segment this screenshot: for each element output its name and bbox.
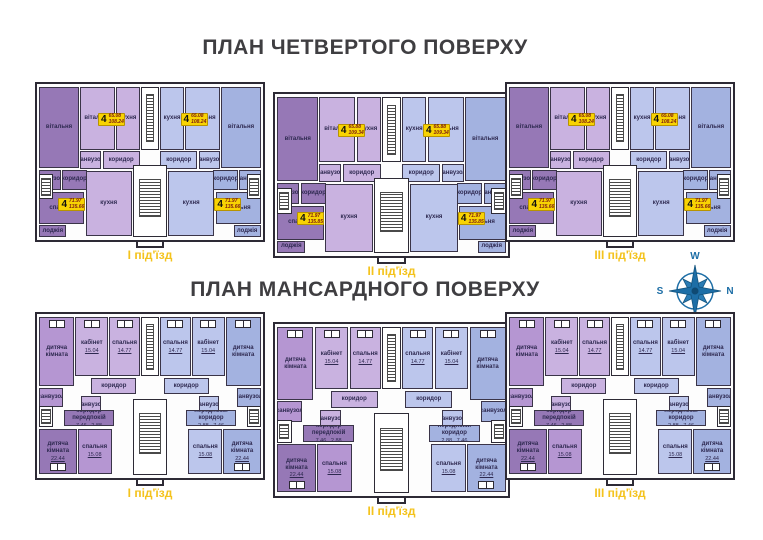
room-label: дитяча кімната [41, 441, 74, 455]
shaft-hatch-icon [146, 324, 154, 370]
window-icon [670, 320, 686, 328]
room-label: санвузол [39, 394, 63, 401]
room-area: 22.44 [480, 472, 494, 478]
room-label: спальня [663, 444, 688, 451]
room-label: санвузол [707, 394, 731, 401]
room-bathroom: санвузол [237, 388, 261, 408]
room-label: спальня [582, 340, 607, 347]
room-corridor: коридор [301, 183, 327, 204]
room-area: 15.08 [442, 469, 456, 475]
room-label: дитяча кімната [279, 458, 313, 472]
room-children-room: дитяча кімната [277, 327, 313, 399]
window-icon [167, 320, 183, 328]
apartment-area-badge: 471.97135.66 [684, 198, 711, 211]
room-bathroom: санвузол [277, 401, 301, 422]
room-area: 15.04 [201, 348, 215, 354]
room-study: кабінет15.04 [545, 317, 578, 376]
room-label: коридор передпокій [66, 410, 112, 422]
stair-core [603, 165, 637, 237]
entrance-label-II: ІІ під'їзд [273, 504, 510, 518]
room-area: 14.77 [411, 359, 425, 365]
stairs-icon [279, 424, 289, 439]
room-children-room: дитяча кімната22.44 [467, 444, 505, 491]
apartment-rooms-count: 4 [529, 199, 539, 210]
room-corridor: коридор [213, 170, 238, 190]
shaft-hatch-icon [387, 105, 396, 155]
room-study: кабінет15.04 [435, 327, 469, 389]
window-icon [84, 320, 100, 328]
window-icon [704, 463, 720, 471]
room-living-room: вітальня [509, 87, 549, 168]
room-label: дитяча кімната [228, 345, 259, 359]
side-stairs-left [39, 174, 54, 199]
shaft-hatch-icon [146, 94, 154, 142]
entrance-stub [377, 498, 405, 504]
plan-title-mansard: ПЛАН МАНСАРДНОГО ПОВЕРХУ [0, 278, 730, 302]
room-living-room: вітальня [277, 97, 318, 181]
room-label: санвузол [509, 394, 533, 401]
window-icon [50, 463, 66, 471]
room-hallway: передпокій коридор2.88 7.46 [656, 410, 706, 426]
apartment-rooms-count: 4 [459, 213, 469, 224]
room-area: 2.88 7.46 [441, 438, 467, 442]
room-children-room: дитяча кімната22.44 [693, 429, 730, 474]
room-label: коридор [409, 170, 434, 177]
building-section-II-fourth-floor: вітальнявітальнякухнякухнявітальнявіталь… [273, 92, 510, 258]
room-label: вітальня [228, 124, 254, 131]
entrance-label-I: І під'їзд [35, 486, 265, 500]
apartment-rooms-count: 4 [685, 199, 695, 210]
ventilation-shaft [141, 317, 159, 376]
apartment-areas: 65.08108.24 [661, 114, 677, 125]
apartment-areas: 65.88109.34 [434, 125, 450, 136]
room-label: кабінет [321, 351, 343, 358]
room-label: коридор [174, 383, 199, 390]
room-label: санвузол [551, 402, 571, 409]
apartment-total-area: 135.66 [695, 204, 710, 210]
entrance-stub [377, 258, 405, 264]
room-label: дитяча кімната [225, 441, 258, 455]
room-corridor: коридор [457, 183, 483, 204]
room-living-room: вітальня [691, 87, 731, 168]
room-area: 22.44 [51, 456, 65, 462]
room-corridor: коридор [561, 378, 606, 394]
room-living-room: вітальня [465, 97, 506, 181]
room-label: коридор [301, 190, 326, 197]
room-label: коридор [101, 383, 126, 390]
room-bedroom: спальня15.08 [548, 429, 582, 474]
side-stairs-left [277, 420, 292, 442]
room-area: 15.04 [325, 359, 339, 365]
room-corridor: коридор [532, 170, 557, 190]
side-stairs-right [491, 188, 506, 214]
room-label: кухня [100, 200, 117, 207]
apartment-total-area: 109.34 [348, 130, 363, 136]
room-hallway: коридор передпокій7.46 2.88 [534, 410, 584, 426]
apartment-areas: 71.97135.66 [695, 199, 711, 210]
apartment-areas: 71.97135.66 [69, 199, 85, 210]
apartment-total-area: 108.24 [661, 119, 676, 125]
apartment-rooms-count: 4 [59, 199, 69, 210]
room-corridor: коридор [164, 378, 209, 394]
room-loggia: лоджія [478, 241, 506, 253]
room-study: кабінет15.04 [75, 317, 108, 376]
apartment-total-area: 108.24 [579, 119, 594, 125]
side-stairs-left [509, 174, 524, 199]
room-label: вітальня [472, 136, 498, 143]
room-kitchen: кухня [86, 171, 132, 237]
room-label: кабінет [197, 340, 219, 347]
apartment-rooms-count: 4 [652, 114, 662, 125]
apartment-area-badge: 465.88109.34 [338, 124, 365, 137]
side-stairs-right [247, 406, 262, 427]
room-loggia: лоджія [704, 225, 731, 237]
ventilation-shaft [382, 327, 401, 389]
apartment-areas: 65.08108.24 [579, 114, 595, 125]
room-living-room: вітальня [221, 87, 261, 168]
stair-core [603, 399, 637, 474]
entrance-label-III: ІІІ під'їзд [505, 486, 735, 500]
room-area: 15.04 [445, 359, 459, 365]
room-label: спальня [193, 444, 218, 451]
window-icon [587, 320, 603, 328]
room-label: вітальня [698, 124, 724, 131]
apartment-total-area: 135.66 [539, 204, 554, 210]
window-icon [478, 481, 494, 489]
shaft-hatch-icon [616, 324, 624, 370]
room-label: спальня [405, 351, 430, 358]
room-label: спальня [82, 444, 107, 451]
room-kitchen: кухня [410, 184, 458, 252]
room-label: коридор [109, 157, 134, 164]
stairs-icon [139, 179, 161, 217]
room-label: коридор передпокій [305, 425, 352, 437]
room-bedroom: спальня15.08 [188, 429, 222, 474]
room-label: коридор [571, 383, 596, 390]
stairs-icon [719, 178, 729, 195]
stairs-icon [279, 192, 289, 210]
room-label: кухня [341, 214, 358, 221]
room-label: коридор [636, 157, 661, 164]
window-icon [234, 463, 250, 471]
room-corridor: коридор [405, 391, 452, 408]
window-icon [480, 330, 496, 338]
window-icon [410, 330, 426, 338]
window-icon [554, 320, 570, 328]
room-label: дитяча кімната [511, 345, 542, 359]
room-label: вітальня [46, 124, 72, 131]
room-label: коридор [457, 190, 482, 197]
room-label: кухня [406, 126, 423, 133]
room-area: 2.88 7.46 [668, 423, 694, 427]
room-children-room: дитяча кімната22.44 [39, 429, 76, 474]
apartment-total-area: 108.24 [191, 119, 206, 125]
apartment-rooms-count: 4 [99, 114, 109, 125]
room-children-room: дитяча кімната [696, 317, 731, 386]
room-label: дитяча кімната [469, 458, 503, 472]
room-label: лоджія [237, 228, 258, 235]
room-corridor: коридор [634, 378, 679, 394]
room-hallway: коридор передпокій7.46 2.88 [303, 425, 354, 442]
room-label: коридор [349, 170, 374, 177]
room-label: санвузол [199, 157, 220, 164]
apartment-areas: 71.97135.85 [468, 213, 484, 224]
room-label: коридор [213, 176, 238, 183]
room-bedroom: спальня14.77 [109, 317, 140, 376]
room-label: санвузол [277, 408, 301, 415]
room-label: спальня [436, 461, 461, 468]
room-area: 15.04 [671, 348, 685, 354]
room-bathroom: санвузол [669, 151, 690, 169]
room-label: дитяча кімната [41, 345, 72, 359]
room-label: дитяча кімната [472, 357, 504, 371]
elevator-shaft [382, 97, 402, 162]
room-label: спальня [163, 340, 188, 347]
room-label: спальня [112, 340, 137, 347]
room-label: кухня [164, 115, 181, 122]
room-bedroom: спальня15.08 [431, 444, 466, 491]
room-loggia: лоджія [277, 241, 305, 253]
room-kitchen: кухня [168, 171, 214, 237]
apartment-rooms-count: 4 [424, 125, 434, 136]
room-label: кабінет [551, 340, 573, 347]
room-label: коридор [579, 157, 604, 164]
apartment-rooms-count: 4 [569, 114, 579, 125]
room-label: кухня [634, 115, 651, 122]
apartment-total-area: 135.85 [308, 219, 323, 225]
room-study: кабінет15.04 [662, 317, 695, 376]
elevator-shaft [141, 87, 160, 149]
side-stairs-right [247, 174, 262, 199]
entrance-stub [606, 242, 634, 248]
room-label: передпокій коридор [658, 410, 704, 422]
room-label: лоджія [43, 228, 64, 235]
apartment-areas: 65.08108.24 [109, 114, 125, 125]
window-icon [117, 320, 133, 328]
stairs-icon [380, 428, 403, 470]
stairs-icon [511, 409, 521, 424]
room-label: лоджія [281, 243, 302, 250]
apartment-area-badge: 471.97135.66 [58, 198, 85, 211]
room-bathroom: санвузол [80, 151, 101, 169]
room-bedroom: спальня14.77 [579, 317, 610, 376]
room-area: 14.77 [358, 359, 372, 365]
apartment-rooms-count: 4 [339, 125, 349, 136]
entrance-stub [136, 242, 164, 248]
room-label: санвузол [80, 157, 101, 164]
building-section-I-mansard: дитяча кімнатакабінет15.04спальня14.77сп… [35, 312, 265, 480]
stairs-icon [249, 409, 259, 424]
room-bedroom: спальня14.77 [350, 327, 381, 389]
side-stairs-left [277, 188, 292, 214]
room-children-room: дитяча кімната [226, 317, 261, 386]
room-label: лоджія [707, 228, 728, 235]
room-label: коридор [166, 157, 191, 164]
room-loggia: лоджія [234, 225, 261, 237]
room-label: кабінет [441, 351, 463, 358]
ventilation-shaft [611, 317, 629, 376]
room-label: кухня [426, 214, 443, 221]
room-label: коридор [532, 176, 557, 183]
apartment-total-area: 135.85 [468, 219, 483, 225]
room-kitchen: кухня [325, 184, 373, 252]
compass-center [692, 288, 699, 295]
entrance-stub [606, 480, 634, 486]
room-label: спальня [633, 340, 658, 347]
room-area: 14.77 [588, 348, 602, 354]
side-stairs-right [491, 420, 506, 442]
entrance-label-I: І під'їзд [35, 248, 265, 262]
room-label: санвузол [481, 408, 505, 415]
apartment-rooms-count: 4 [298, 213, 308, 224]
window-icon [235, 320, 251, 328]
stairs-icon [494, 424, 504, 439]
apartment-area-badge: 465.08108.24 [98, 113, 125, 126]
room-children-room: дитяча кімната22.44 [509, 429, 546, 474]
room-bathroom: санвузол [39, 388, 63, 408]
stairs-icon [494, 192, 504, 210]
room-label: дитяча кімната [279, 357, 311, 371]
room-label: коридор [683, 176, 708, 183]
side-stairs-left [39, 406, 54, 427]
apartment-area-badge: 465.08108.24 [568, 113, 595, 126]
room-label: лоджія [481, 243, 502, 250]
room-label: спальня [322, 461, 347, 468]
room-kitchen: кухня [638, 171, 684, 237]
room-hallway: передпокій коридор2.88 7.46 [429, 425, 480, 442]
room-corridor: коридор [62, 170, 87, 190]
room-label: вітальня [516, 124, 542, 131]
room-area: 15.08 [88, 452, 102, 458]
room-children-room: дитяча кімната [470, 327, 506, 399]
room-label: вітальня [285, 136, 311, 143]
room-study: кабінет15.04 [192, 317, 225, 376]
room-bedroom: спальня15.08 [317, 444, 352, 491]
building-section-III-fourth-floor: вітальнявітальнякухнякухнявітальнявіталь… [505, 82, 735, 242]
room-label: лоджія [513, 228, 534, 235]
room-area: 22.44 [521, 456, 535, 462]
room-loggia: лоджія [39, 225, 66, 237]
stairs-icon [609, 413, 631, 453]
room-bathroom: санвузол [442, 164, 464, 183]
window-icon [357, 330, 373, 338]
apartment-area-badge: 465.08108.24 [651, 113, 678, 126]
room-area: 14.77 [169, 348, 183, 354]
room-label: дитяча кімната [698, 345, 729, 359]
room-label: санвузол [442, 170, 464, 177]
room-label: спальня [552, 444, 577, 451]
room-children-room: дитяча кімната [39, 317, 74, 386]
window-icon [520, 463, 536, 471]
room-area: 15.04 [85, 348, 99, 354]
room-label: санвузол [550, 157, 571, 164]
apartment-areas: 65.08108.24 [191, 114, 207, 125]
window-icon [200, 320, 216, 328]
room-bedroom: спальня14.77 [402, 327, 433, 389]
room-label: санвузол [669, 157, 690, 164]
apartment-rooms-count: 4 [215, 199, 225, 210]
window-icon [705, 320, 721, 328]
room-children-room: дитяча кімната22.44 [223, 429, 260, 474]
room-label: санвузол [319, 170, 341, 177]
building-section-I-fourth-floor: вітальнявітальнякухнякухнявітальнявіталь… [35, 82, 265, 242]
room-children-room: дитяча кімната22.44 [277, 444, 315, 491]
apartment-rooms-count: 4 [182, 114, 192, 125]
apartment-area-badge: 465.08108.24 [181, 113, 208, 126]
room-bathroom: санвузол [199, 151, 220, 169]
window-icon [637, 320, 653, 328]
apartment-areas: 71.97135.66 [225, 199, 241, 210]
room-hallway: коридор передпокій7.46 2.88 [64, 410, 114, 426]
side-stairs-right [717, 174, 732, 199]
room-label: санвузол [442, 416, 463, 423]
room-loggia: лоджія [509, 225, 536, 237]
room-kitchen: кухня [556, 171, 602, 237]
apartment-area-badge: 471.97135.66 [214, 198, 241, 211]
room-corridor: коридор [331, 391, 378, 408]
room-label: спальня [353, 351, 378, 358]
room-hallway: передпокій коридор2.88 7.46 [186, 410, 236, 426]
stairs-icon [41, 409, 51, 424]
stairs-icon [609, 179, 631, 217]
shaft-hatch-icon [387, 334, 395, 382]
stair-core [374, 413, 409, 492]
window-icon [289, 481, 305, 489]
room-label: кухня [570, 200, 587, 207]
apartment-total-area: 109.34 [434, 130, 449, 136]
room-area: 7.46 2.88 [316, 438, 342, 442]
room-label: коридор [416, 396, 441, 403]
room-bathroom: санвузол [550, 151, 571, 169]
room-bedroom: спальня14.77 [630, 317, 661, 376]
room-label: передпокій коридор [188, 410, 234, 422]
room-label: коридор [342, 396, 367, 403]
side-stairs-right [717, 406, 732, 427]
building-section-III-mansard: дитяча кімнатакабінет15.04спальня14.77сп… [505, 312, 735, 480]
window-icon [443, 330, 459, 338]
room-label: кабінет [667, 340, 689, 347]
shaft-hatch-icon [616, 94, 624, 142]
room-area: 15.08 [328, 469, 342, 475]
room-label: коридор [62, 176, 87, 183]
room-study: кабінет15.04 [315, 327, 349, 389]
room-label: дитяча кімната [511, 441, 544, 455]
room-area: 7.46 2.88 [76, 423, 102, 427]
stairs-icon [249, 178, 259, 195]
room-bedroom: спальня15.08 [658, 429, 692, 474]
apartment-area-badge: 471.97135.85 [297, 212, 324, 225]
room-area: 14.77 [118, 348, 132, 354]
compass-north-label: N [726, 286, 733, 297]
room-bathroom: санвузол [509, 388, 533, 408]
room-label: кабінет [81, 340, 103, 347]
entrance-stub [136, 480, 164, 486]
stair-core [133, 165, 167, 237]
room-area: 15.04 [555, 348, 569, 354]
apartment-total-area: 135.66 [69, 204, 84, 210]
stairs-icon [719, 409, 729, 424]
side-stairs-left [509, 406, 524, 427]
stairs-icon [511, 178, 521, 195]
apartment-areas: 65.88109.34 [348, 125, 364, 136]
room-label: санвузол [237, 394, 261, 401]
room-area: 22.44 [705, 456, 719, 462]
room-area: 15.08 [668, 452, 682, 458]
window-icon [287, 330, 303, 338]
room-label: кухня [183, 200, 200, 207]
room-label: санвузол [669, 402, 689, 409]
room-label: санвузол [81, 402, 101, 409]
